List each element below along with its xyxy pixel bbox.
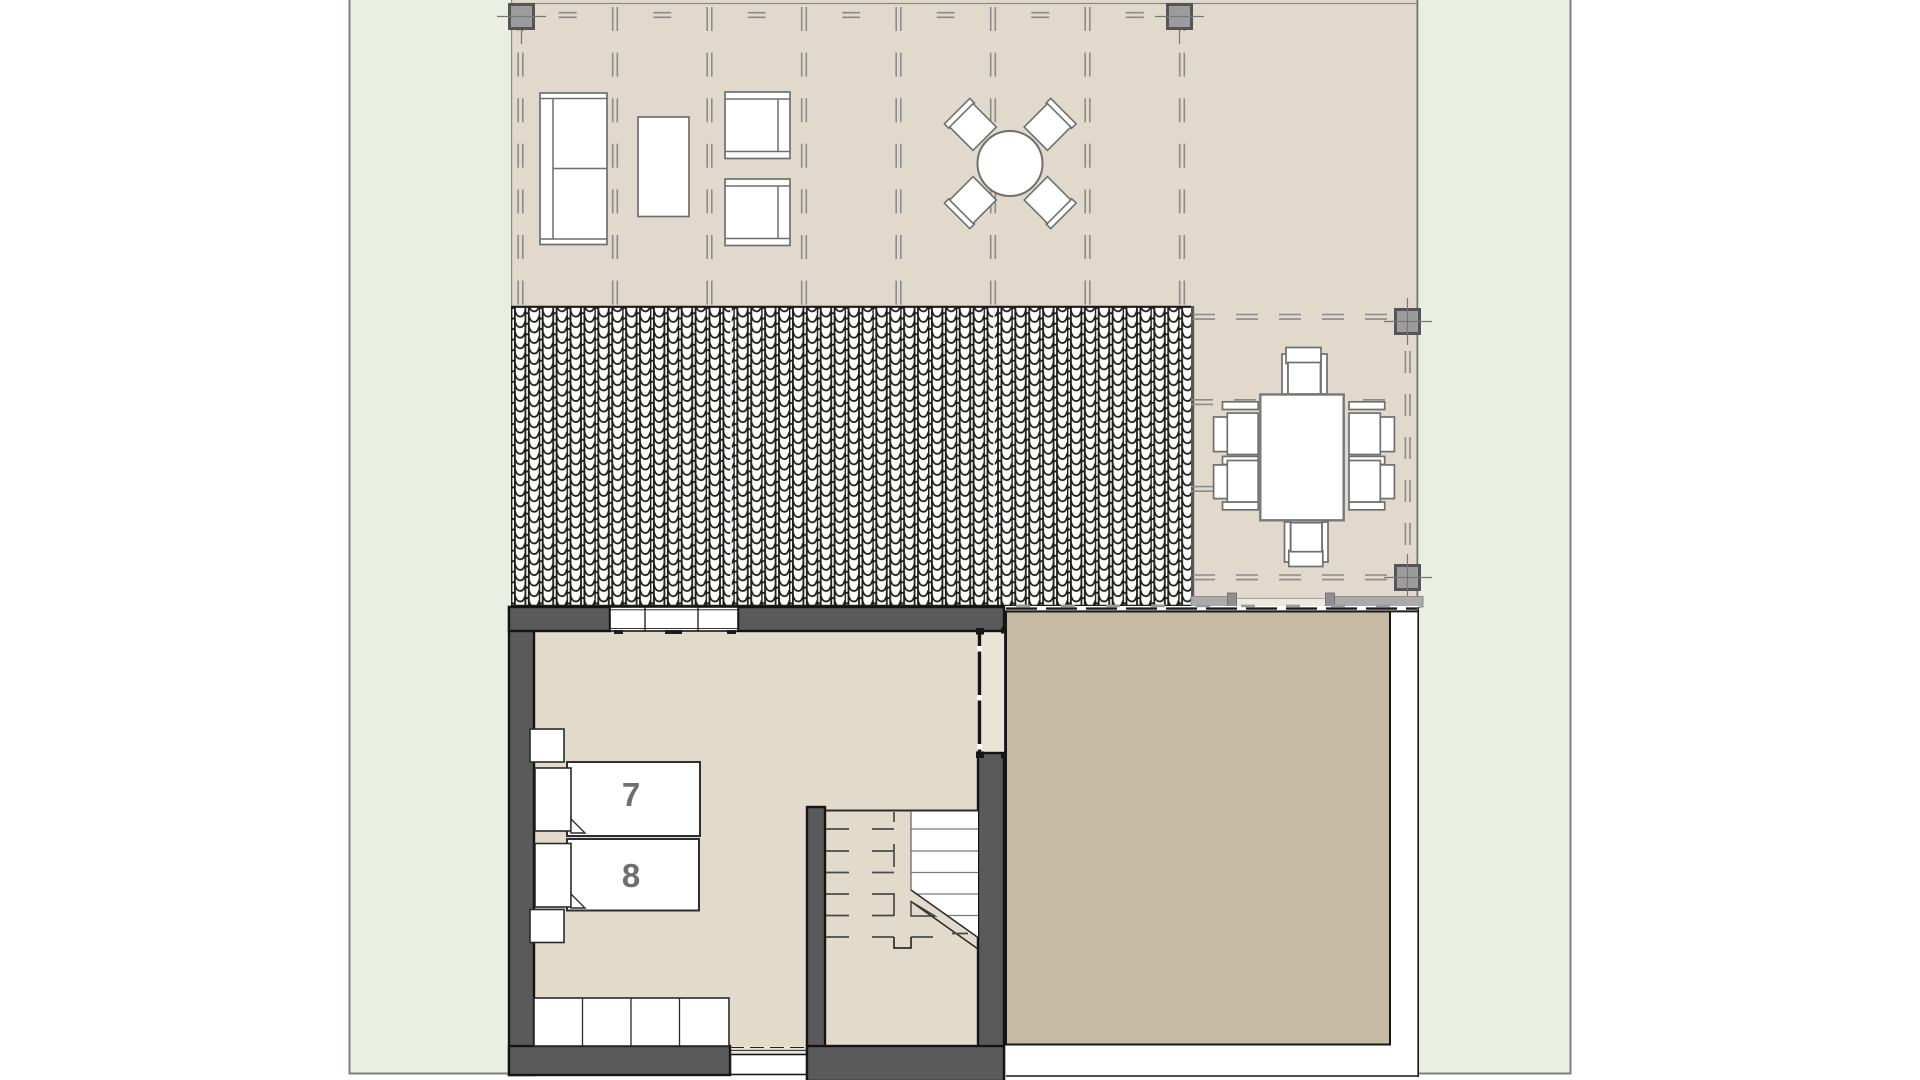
svg-text:7: 7 (622, 776, 640, 813)
svg-text:8: 8 (622, 857, 640, 894)
